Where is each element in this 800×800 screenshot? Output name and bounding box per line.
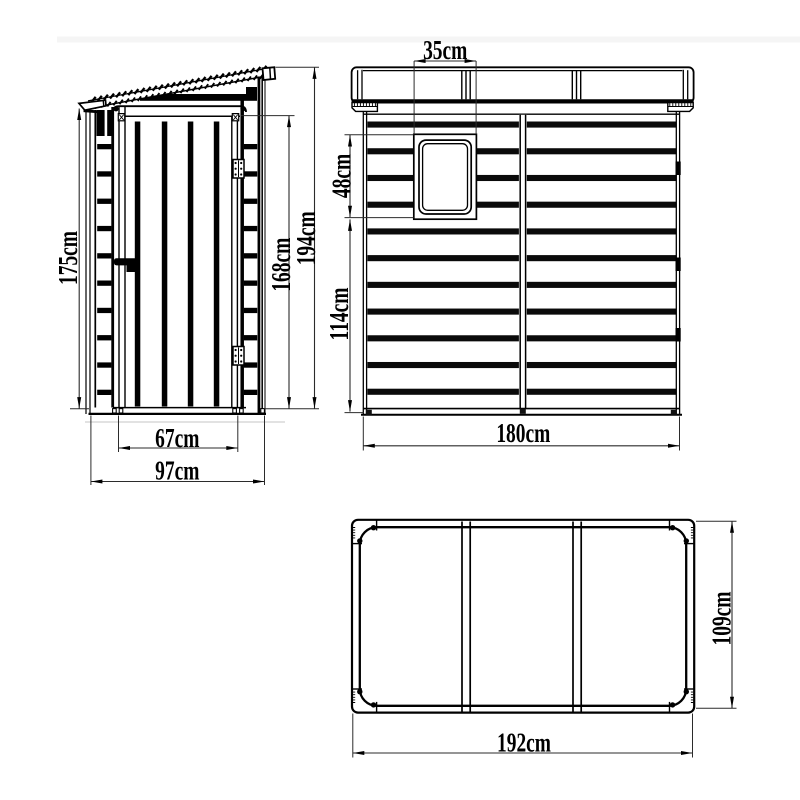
svg-text:192cm: 192cm [497,729,551,759]
svg-text:35cm: 35cm [423,36,468,66]
svg-text:67cm: 67cm [155,424,200,454]
svg-text:175cm: 175cm [54,231,84,285]
svg-text:114cm: 114cm [325,287,355,340]
svg-text:109cm: 109cm [708,591,738,645]
svg-text:194cm: 194cm [292,211,322,265]
svg-text:97cm: 97cm [155,457,200,487]
svg-text:180cm: 180cm [496,419,550,449]
svg-text:48cm: 48cm [327,154,357,199]
